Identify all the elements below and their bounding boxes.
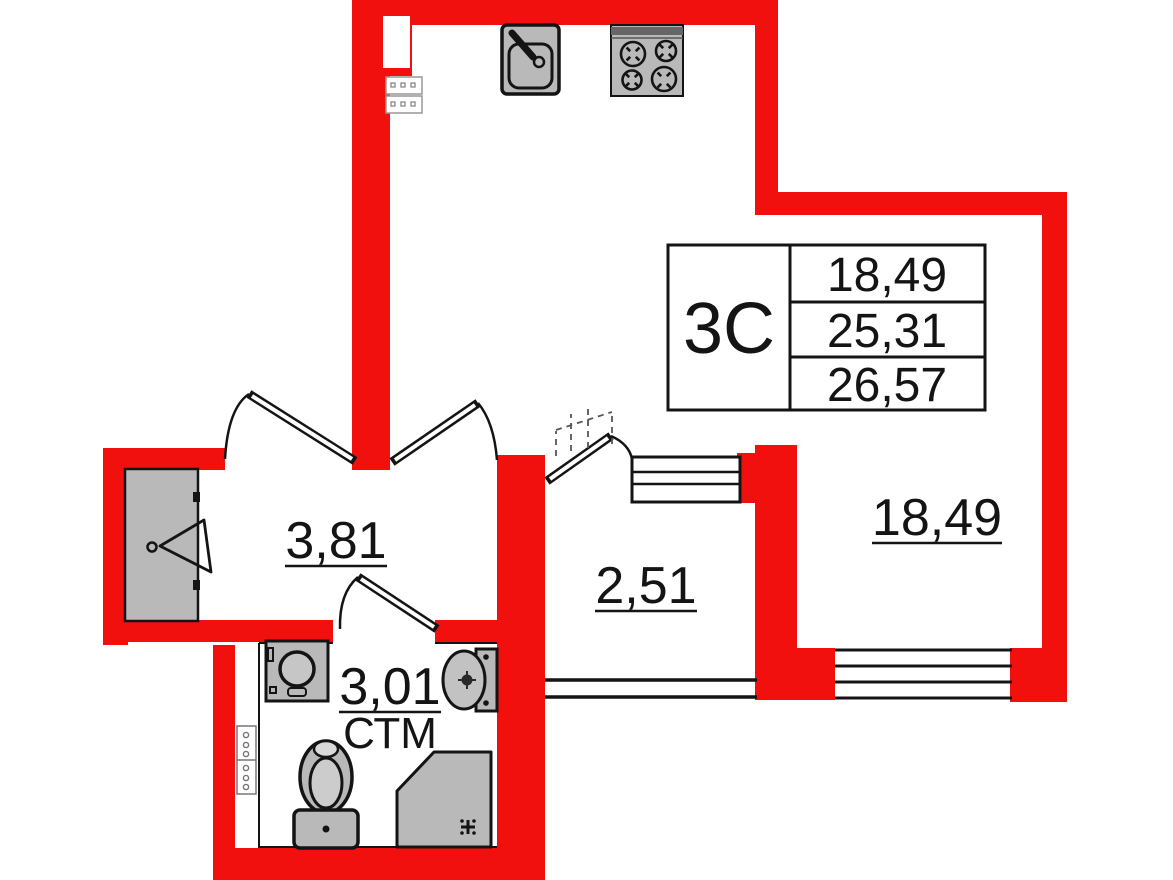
wall-segment — [755, 192, 1067, 215]
floor-plan-page: 3,81 2,51 3,01 СТМ 18,49 3С 18,49 25,31 … — [0, 0, 1173, 880]
bathroom-note-label: СТМ — [343, 709, 437, 758]
room-area-labels: 3,81 2,51 3,01 СТМ 18,49 — [285, 489, 1002, 758]
hallway-kitchen-door — [392, 403, 497, 462]
living-room-area-label: 18,49 — [872, 489, 1002, 547]
wall-segment — [755, 648, 835, 700]
apartment-type-label: 3С — [683, 289, 775, 369]
wall-segment — [103, 620, 333, 642]
corridor-area-label: 2,51 — [595, 557, 696, 615]
wall-segment — [435, 620, 497, 642]
kitchen-vent-icon — [386, 77, 422, 113]
apartment-info-table: 3С 18,49 25,31 26,57 — [668, 245, 985, 412]
shower-tray-icon — [397, 752, 491, 847]
washing-machine-icon — [266, 641, 328, 701]
info-table-row: 25,31 — [827, 305, 947, 358]
wardrobe-icon — [125, 469, 211, 621]
kitchen-sink-icon — [502, 25, 559, 94]
hallway-area-label: 3,81 — [285, 512, 386, 570]
wall-segment — [352, 0, 778, 25]
bathroom-door — [340, 577, 437, 629]
info-table-row: 18,49 — [827, 249, 947, 302]
door-swing-dashed — [556, 409, 612, 456]
wall-segment — [755, 0, 778, 215]
wall-segment — [1010, 648, 1067, 702]
wall-segment — [213, 848, 545, 880]
entrance-door — [225, 394, 355, 461]
wall-segment — [213, 645, 235, 880]
vent-shaft-icon — [237, 726, 256, 794]
stove-icon — [611, 25, 683, 96]
wall-segment — [352, 0, 390, 470]
wall-segment — [1042, 192, 1067, 702]
corridor-partition — [545, 680, 757, 697]
built-in-closet — [632, 457, 740, 502]
living-room-window — [835, 650, 1012, 698]
wall-shaft-notch — [383, 16, 410, 68]
bathroom-area-label: 3,01 — [339, 658, 440, 716]
bathroom-sink-icon — [443, 649, 497, 711]
wall-segment — [497, 455, 545, 880]
corridor-door — [547, 409, 632, 481]
info-table-row: 26,57 — [827, 359, 947, 412]
floor-plan: 3,81 2,51 3,01 СТМ 18,49 3С 18,49 25,31 … — [0, 0, 1173, 880]
